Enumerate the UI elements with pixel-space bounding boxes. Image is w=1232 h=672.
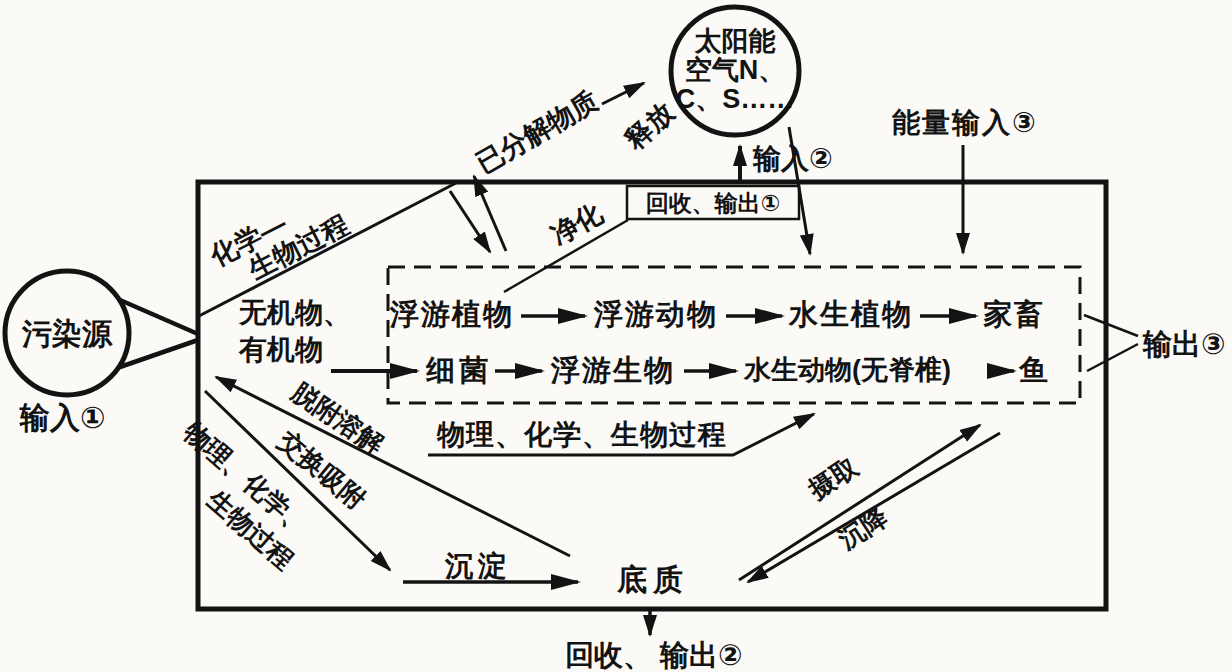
fc2-fish: 鱼 [1019,355,1048,386]
sun-line1: 太阳能 [668,27,802,56]
fc1-phytoplankton: 浮游植物 [390,299,514,330]
recycle-output1-label: 回收、输出① [628,191,798,216]
output3-leader-bottom [1087,344,1138,371]
inorganic-organic-label: 无机物、 有机物 [239,294,351,368]
fc1-zooplankton: 浮游动物 [594,299,718,330]
energy-input3-label: 能量输入③ [892,108,1038,138]
ecosystem-pollution-diagram: 太阳能 空气N、 C、S…… 污染源 输入① 化学— 生物过程 已分解物质 释放… [0,0,1232,672]
output3-label: 输出③ [1143,329,1226,360]
input1-label: 输入① [20,402,105,434]
sediment-label: 底质 [617,564,689,596]
recycle-output2-label: 回收、 输出② [565,640,743,671]
organic-line: 有机物 [239,331,351,368]
sun-line2: 空气N、 [668,56,802,85]
exchange-up-arrow [474,176,506,251]
fc2-aquatic-animals: 水生动物(无脊椎) [744,356,951,385]
output3-leader-top [1084,315,1138,336]
phys-chem-bio-mid-label: 物理、化学、生物过程 [437,420,727,450]
fc1-livestock: 家畜 [983,299,1045,330]
fc1-aquatic-plants: 水生植物 [789,299,913,330]
fc2-bacteria: 细菌 [426,355,492,386]
diagram-lines [0,0,1232,672]
sun-air-label: 太阳能 空气N、 C、S…… [668,27,802,114]
sedimentation-label: 沉淀 [445,551,511,582]
uptake-arrow [739,425,980,580]
inorganic-line: 无机物、 [239,294,351,331]
input2-label: 输入② [753,144,833,174]
pollution-funnel [120,300,198,367]
fc2-plankton: 浮游生物 [551,355,675,386]
pollution-source-label: 污染源 [16,318,118,350]
